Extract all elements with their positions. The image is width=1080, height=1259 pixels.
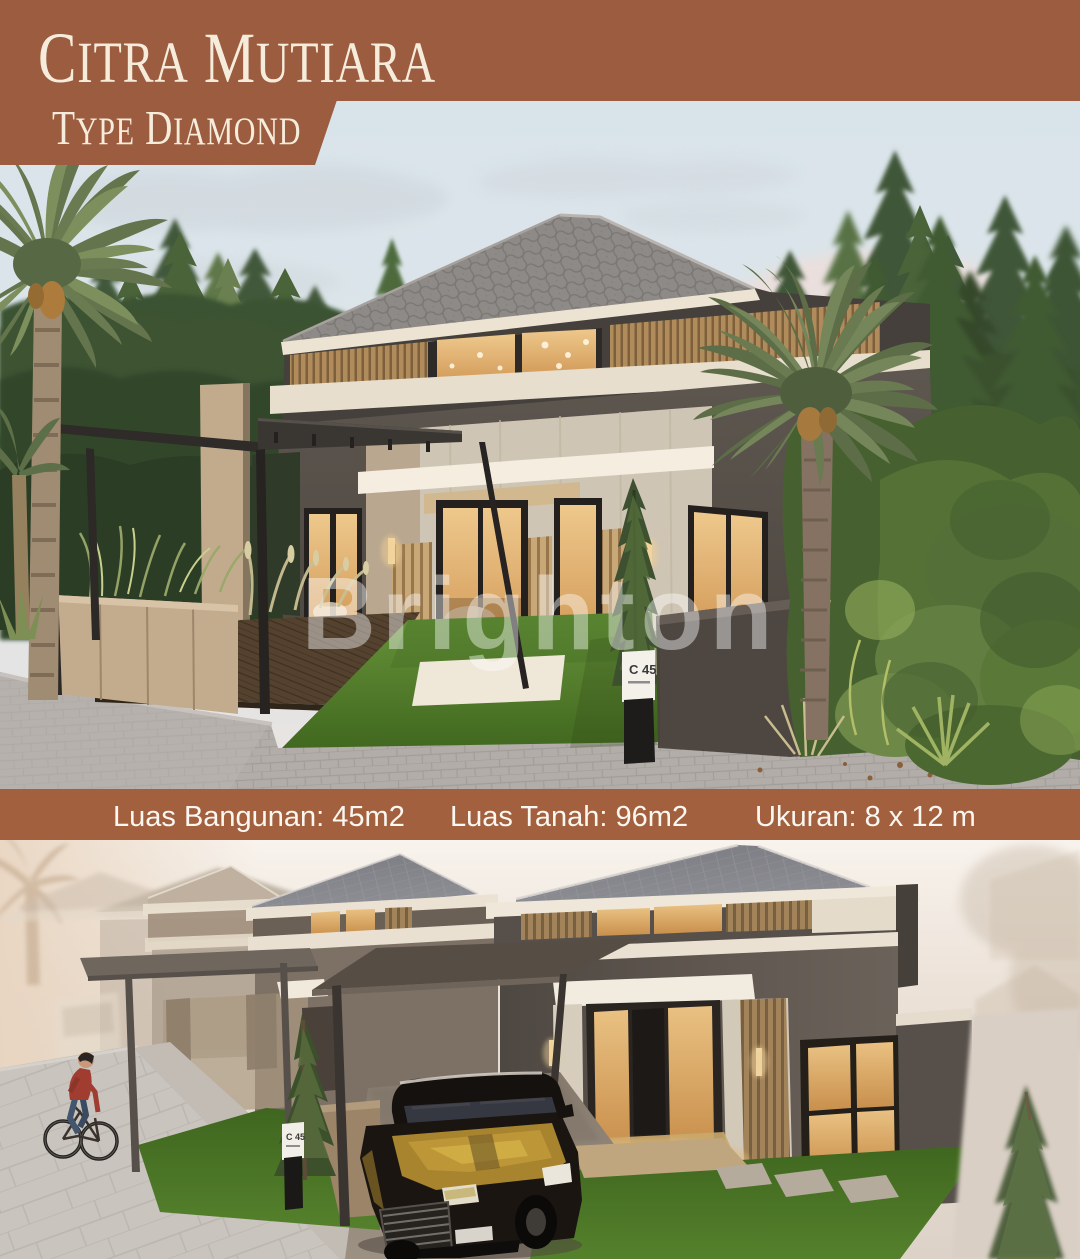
svg-text:Brighton: Brighton — [301, 556, 778, 671]
svg-text:C 45: C 45 — [286, 1132, 305, 1142]
